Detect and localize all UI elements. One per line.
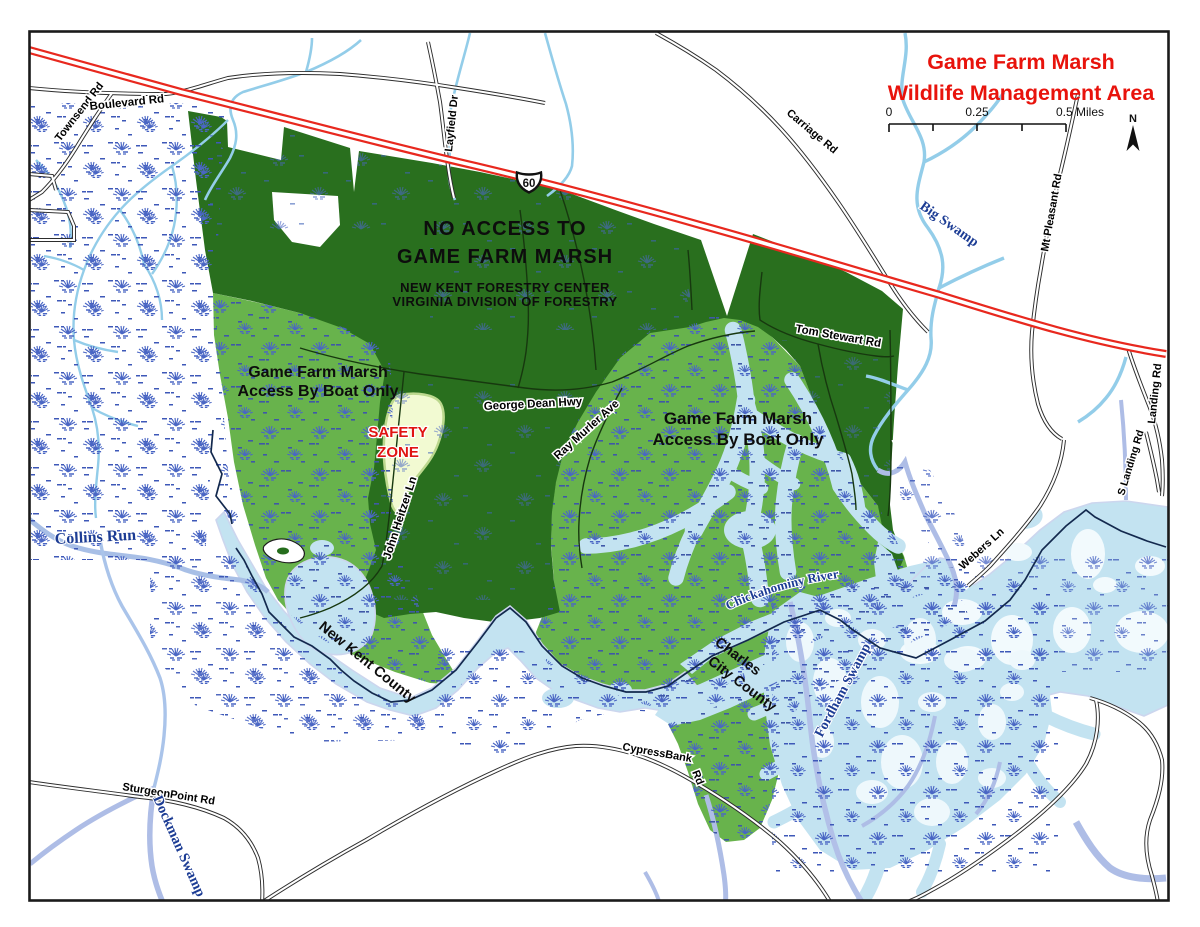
svg-text:0.5 Miles: 0.5 Miles bbox=[1056, 105, 1104, 119]
svg-text:ZONE: ZONE bbox=[377, 444, 419, 461]
svg-text:Game Farm Marsh: Game Farm Marsh bbox=[664, 409, 812, 428]
svg-text:Access By Boat Only: Access By Boat Only bbox=[238, 383, 399, 400]
svg-text:Access By Boat Only: Access By Boat Only bbox=[652, 430, 824, 449]
svg-text:NO ACCESS TO: NO ACCESS TO bbox=[423, 218, 586, 240]
svg-text:NEW KENT FORESTRY CENTER: NEW KENT FORESTRY CENTER bbox=[400, 280, 610, 295]
svg-text:Game Farm Marsh: Game Farm Marsh bbox=[248, 364, 388, 381]
svg-text:Game Farm Marsh: Game Farm Marsh bbox=[927, 50, 1115, 74]
svg-text:N: N bbox=[1129, 113, 1137, 125]
svg-text:60: 60 bbox=[523, 178, 536, 190]
svg-text:VIRGINIA DIVISION OF FORESTRY: VIRGINIA DIVISION OF FORESTRY bbox=[392, 294, 617, 309]
svg-text:0.25: 0.25 bbox=[965, 105, 989, 119]
svg-text:GAME FARM MARSH: GAME FARM MARSH bbox=[397, 246, 613, 268]
svg-text:Wildlife Management Area: Wildlife Management Area bbox=[888, 81, 1156, 105]
svg-text:0: 0 bbox=[886, 105, 893, 119]
svg-text:SAFETY: SAFETY bbox=[368, 424, 427, 441]
